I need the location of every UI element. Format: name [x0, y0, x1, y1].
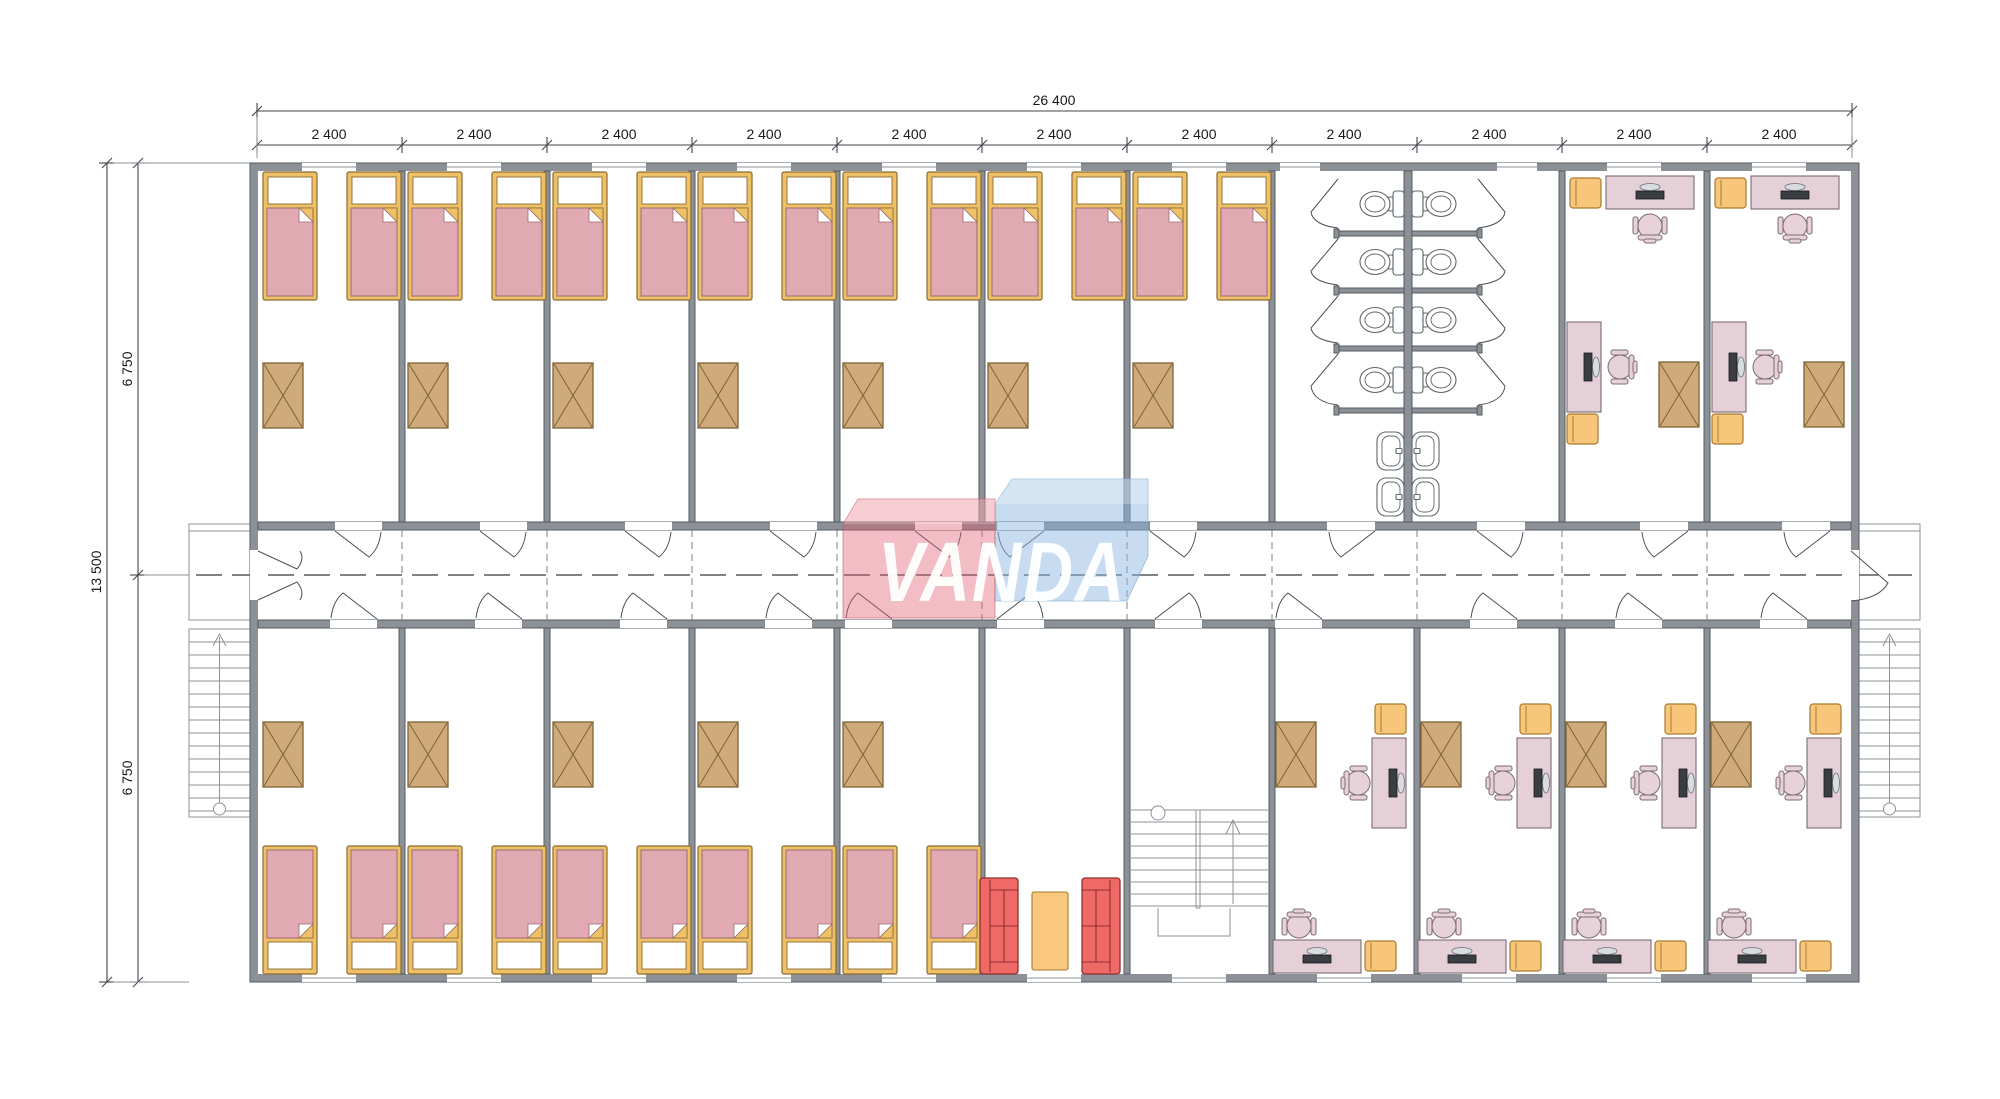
floor-plan-canvas: 26 400 2 400 2 400 2 400 2 400 2 400 2 4… [0, 0, 2000, 1099]
bed [1217, 172, 1271, 300]
bed [263, 172, 317, 300]
desk-with-computer [1372, 738, 1406, 828]
window [1027, 974, 1081, 982]
stool [1520, 704, 1551, 734]
bed [782, 172, 836, 300]
window [1752, 163, 1806, 171]
dimension-label-module: 2 400 [1181, 126, 1216, 142]
dimension-left-total: 13 500 [88, 158, 115, 987]
stool [1375, 704, 1406, 734]
wardrobe [1133, 363, 1173, 428]
toilet [1360, 307, 1404, 333]
bed [988, 172, 1042, 300]
sofa [980, 878, 1018, 974]
logo-red-top-face [843, 499, 995, 524]
bed [492, 172, 546, 300]
stool [1715, 178, 1746, 208]
toilet [1412, 191, 1456, 217]
window [1280, 163, 1320, 171]
window [737, 974, 791, 982]
wardrobe [1659, 362, 1699, 427]
stool [1712, 414, 1743, 444]
bed [408, 172, 462, 300]
sink [1412, 432, 1439, 470]
desk-with-computer [1273, 940, 1361, 973]
wardrobe [843, 722, 883, 787]
dimension-top-modules: 2 400 2 400 2 400 2 400 2 400 2 400 2 40… [252, 126, 1857, 153]
office-chair [1778, 214, 1812, 243]
window [1317, 974, 1371, 982]
bed [408, 846, 462, 974]
office-chair [1631, 766, 1660, 800]
bed [263, 846, 317, 974]
logo-blue-top-face [995, 479, 1148, 504]
desk-with-computer [1567, 322, 1601, 412]
bed [347, 846, 401, 974]
toilet [1412, 367, 1456, 393]
window [302, 974, 356, 982]
window [1172, 974, 1226, 982]
window [447, 974, 501, 982]
wardrobe [1566, 722, 1606, 787]
wardrobe [408, 722, 448, 787]
wardrobe [988, 363, 1028, 428]
bed [927, 172, 981, 300]
office-chair [1633, 214, 1667, 243]
bed [1072, 172, 1126, 300]
dimension-label-module: 2 400 [311, 126, 346, 142]
toilet [1360, 367, 1404, 393]
window [737, 163, 791, 171]
sink [1377, 432, 1404, 470]
window [592, 163, 646, 171]
wardrobe [1276, 722, 1316, 787]
dimension-label-total-height: 13 500 [88, 550, 104, 593]
bed [553, 172, 607, 300]
desk-with-computer [1606, 176, 1694, 209]
office-chair [1776, 766, 1805, 800]
window [302, 163, 356, 171]
bed [553, 846, 607, 974]
coffee-table [1032, 892, 1068, 970]
bed [637, 846, 691, 974]
desk-with-computer [1751, 176, 1839, 209]
desk-with-computer [1418, 940, 1506, 973]
window [1497, 163, 1537, 171]
wardrobe [1804, 362, 1844, 427]
office-chair [1753, 350, 1782, 384]
bed [843, 846, 897, 974]
wardrobe [698, 363, 738, 428]
desk-with-computer [1708, 940, 1796, 973]
bed [1133, 172, 1187, 300]
bed [637, 172, 691, 300]
staircase-exterior-left [189, 629, 250, 817]
wardrobe [553, 722, 593, 787]
dimension-top-total: 26 400 [252, 92, 1857, 119]
lounge [980, 878, 1120, 974]
bed [698, 172, 752, 300]
bed [782, 846, 836, 974]
window [1607, 974, 1661, 982]
office-chair [1717, 909, 1751, 938]
dimension-label-module: 2 400 [456, 126, 491, 142]
desk-with-computer [1662, 738, 1696, 828]
dimension-label-half-height: 6 750 [119, 760, 135, 795]
toilet [1360, 249, 1404, 275]
wardrobe [408, 363, 448, 428]
dimension-label-half-height: 6 750 [119, 351, 135, 386]
desk-with-computer [1712, 322, 1746, 412]
window [592, 974, 646, 982]
window [882, 974, 936, 982]
vanda-logo: VANDA [843, 479, 1148, 619]
stool [1655, 941, 1686, 971]
desk-with-computer [1517, 738, 1551, 828]
dimension-label-module: 2 400 [746, 126, 781, 142]
window [1462, 974, 1516, 982]
office-chair [1572, 909, 1606, 938]
dimension-label-module: 2 400 [1616, 126, 1651, 142]
sink [1412, 478, 1439, 516]
wardrobe [698, 722, 738, 787]
dimension-label-module: 2 400 [1761, 126, 1796, 142]
dimension-label-module: 2 400 [891, 126, 926, 142]
desk-with-computer [1807, 738, 1841, 828]
stool [1567, 414, 1598, 444]
wardrobe [553, 363, 593, 428]
wardrobe [1421, 722, 1461, 787]
toilet [1412, 307, 1456, 333]
dimension-label-module: 2 400 [601, 126, 636, 142]
window [447, 163, 501, 171]
dimension-label-module: 2 400 [1326, 126, 1361, 142]
office-chair [1608, 350, 1637, 384]
window [1172, 163, 1226, 171]
wardrobe [843, 363, 883, 428]
dimension-label-module: 2 400 [1471, 126, 1506, 142]
dimension-left-halves: 6 750 6 750 [119, 158, 146, 987]
office-chair [1486, 766, 1515, 800]
desk-with-computer [1563, 940, 1651, 973]
logo-text: VANDA [878, 525, 1126, 619]
stool [1365, 941, 1396, 971]
staircase-exterior-right [1859, 629, 1920, 817]
office-chair [1341, 766, 1370, 800]
window [1607, 163, 1661, 171]
wardrobe [263, 722, 303, 787]
toilet [1360, 191, 1404, 217]
dimension-label-total-width: 26 400 [1033, 92, 1076, 108]
bed [927, 846, 981, 974]
toilet [1412, 249, 1456, 275]
stool [1665, 704, 1696, 734]
office-chair [1427, 909, 1461, 938]
office-chair [1282, 909, 1316, 938]
stool [1570, 178, 1601, 208]
stool [1510, 941, 1541, 971]
porch-right [1859, 524, 1920, 620]
stool [1800, 941, 1831, 971]
floor-plan: 26 400 2 400 2 400 2 400 2 400 2 400 2 4… [0, 0, 2000, 1099]
bed [492, 846, 546, 974]
sink [1377, 478, 1404, 516]
wardrobe [263, 363, 303, 428]
bed [843, 172, 897, 300]
window [1752, 974, 1806, 982]
washroom-center-wall [1404, 171, 1412, 522]
stool [1810, 704, 1841, 734]
dimension-label-module: 2 400 [1036, 126, 1071, 142]
sofa [1082, 878, 1120, 974]
porch-left [189, 524, 250, 620]
bed [698, 846, 752, 974]
window [882, 163, 936, 171]
bed [347, 172, 401, 300]
wardrobe [1711, 722, 1751, 787]
window [1027, 163, 1081, 171]
